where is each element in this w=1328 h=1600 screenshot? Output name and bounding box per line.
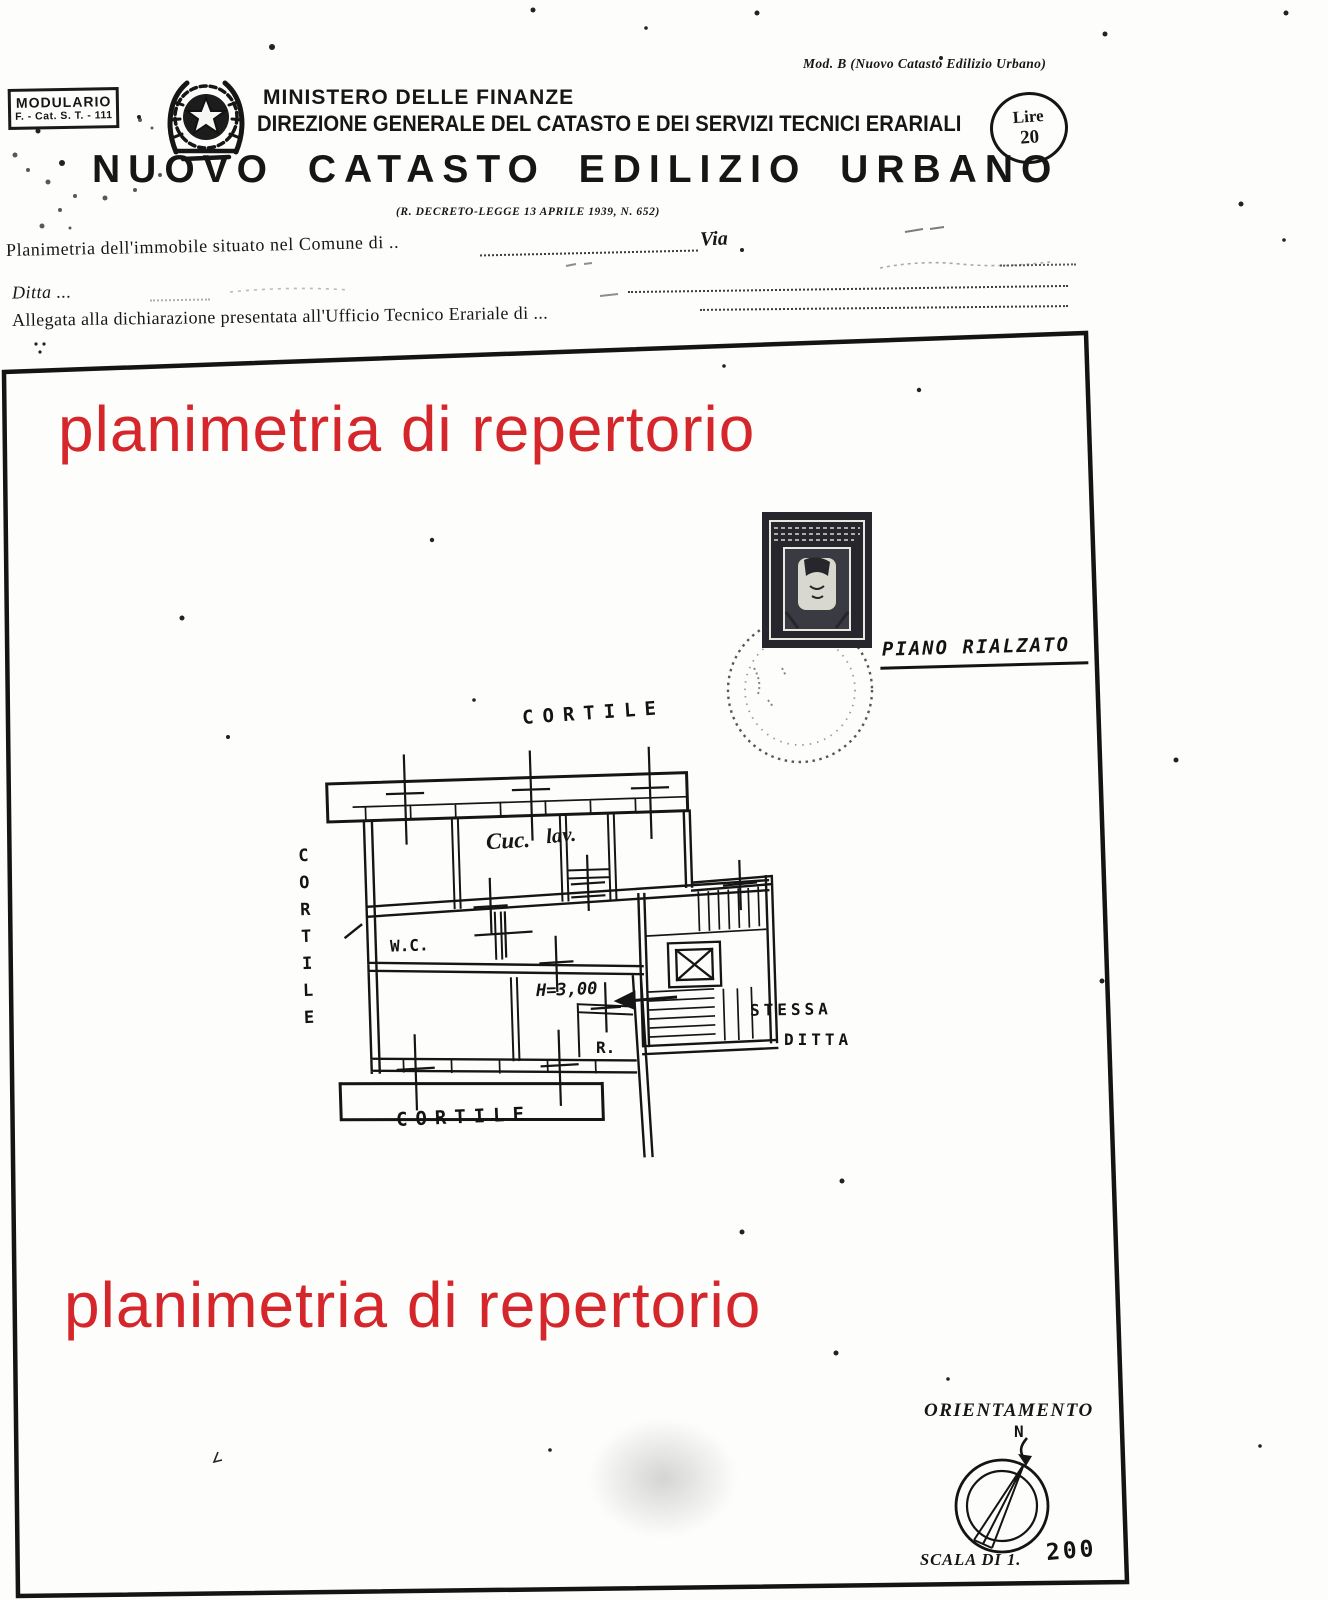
storage-label: R. [596, 1038, 615, 1057]
north-arrow-icon [1018, 1438, 1032, 1466]
kitchen-label: Cuc. [485, 827, 530, 855]
orientation-label: ORIENTAMENTO [924, 1400, 1094, 1422]
ministry-title: MINISTERO DELLE FINANZE [263, 86, 574, 110]
elevator-shaft [668, 942, 721, 988]
faded-stamp-remnant [588, 1418, 738, 1538]
north-label: N [1014, 1422, 1024, 1441]
adjacent-owner-line2: DITTA [784, 1030, 852, 1049]
form-line-ditta: Ditta ... [12, 281, 72, 303]
modulario-line2: F. - Cat. S. T. - 111 [15, 109, 113, 123]
compass-icon [956, 1460, 1048, 1552]
via-label: Via [700, 228, 729, 252]
height-note: H=3,00 [536, 979, 598, 1001]
lire-amount: 20 [1019, 126, 1039, 149]
revenue-stamp-image [762, 512, 872, 648]
modulario-box: MODULARIO F. - Cat. S. T. - 111 [8, 87, 120, 130]
modulario-line1: MODULARIO [15, 93, 113, 111]
scale-value: 200 [1045, 1536, 1098, 1566]
watermark-bottom: planimetria di repertorio [64, 1268, 761, 1342]
scale-label: SCALA DI 1. [920, 1550, 1021, 1570]
via-dot [740, 248, 744, 252]
directorate-title: DIREZIONE GENERALE DEL CATASTO E DEI SER… [257, 111, 961, 137]
laundry-label: lav. [545, 822, 577, 850]
mod-reference: Mod. B (Nuovo Catasto Edilizio Urbano) [803, 56, 1046, 72]
adjacent-owner-line1: STESSA [750, 999, 832, 1019]
wc-label: W.C. [390, 935, 429, 955]
document-title: NUOVO CATASTO EDILIZIO URBANO [92, 148, 1059, 192]
decree-reference: (R. DECRETO-LEGGE 13 APRILE 1939, N. 652… [396, 206, 660, 218]
watermark-top: planimetria di repertorio [58, 392, 755, 466]
lire-label: Lire [1012, 106, 1044, 128]
cadastral-plan-scan: MODULARIO F. - Cat. S. T. - 111 Mod. B (… [0, 0, 1328, 1600]
floor-label: PIANO RIALZATO [880, 633, 1089, 669]
